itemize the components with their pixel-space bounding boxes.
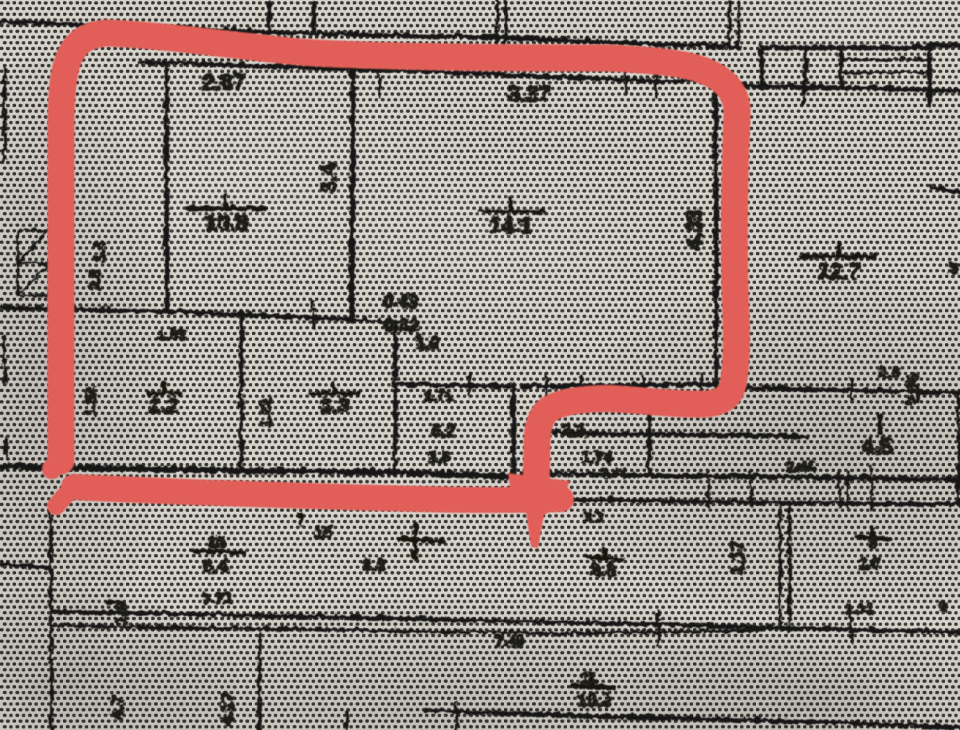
- svg-text:1.5: 1.5: [90, 240, 107, 261]
- svg-text:1.74: 1.74: [579, 448, 610, 465]
- svg-text:2.0: 2.0: [857, 554, 879, 571]
- svg-text:4.5: 4.5: [861, 432, 892, 457]
- svg-text:1.9: 1.9: [361, 554, 385, 573]
- svg-text:1.22: 1.22: [256, 396, 273, 425]
- svg-text:1.83: 1.83: [155, 325, 184, 342]
- svg-text:4.17: 4.17: [217, 691, 236, 724]
- svg-text:1.52: 1.52: [81, 385, 98, 414]
- svg-text:1.71: 1.71: [422, 386, 451, 403]
- svg-text:0.82: 0.82: [382, 314, 417, 334]
- svg-text:2.85: 2.85: [904, 372, 921, 403]
- svg-text:1.9: 1.9: [112, 601, 129, 623]
- svg-text:7.49: 7.49: [493, 632, 522, 649]
- svg-text:14.1: 14.1: [488, 211, 531, 236]
- svg-text:12.7: 12.7: [817, 257, 860, 282]
- svg-text:4.33: 4.33: [682, 208, 705, 249]
- svg-text:1.17: 1.17: [726, 538, 746, 573]
- svg-text:2.87: 2.87: [201, 68, 244, 93]
- svg-text:2.1: 2.1: [559, 419, 584, 439]
- svg-text:1.12: 1.12: [843, 599, 872, 616]
- svg-text:0.43: 0.43: [381, 290, 416, 310]
- svg-text:3.3: 3.3: [318, 393, 347, 416]
- svg-text:2.5: 2.5: [85, 268, 102, 289]
- svg-text:8.6: 8.6: [589, 559, 614, 579]
- svg-text:6.4: 6.4: [201, 555, 226, 575]
- svg-text:3.4: 3.4: [316, 162, 339, 192]
- svg-text:2.44: 2.44: [599, 464, 625, 479]
- svg-text:3.37: 3.37: [507, 80, 550, 105]
- svg-text:2: 2: [938, 597, 946, 613]
- svg-text:8: 8: [867, 533, 875, 550]
- svg-text:5.2: 5.2: [430, 420, 454, 439]
- svg-text:15: 15: [206, 533, 224, 550]
- svg-text:2.2: 2.2: [147, 393, 176, 416]
- svg-text:2.44: 2.44: [784, 457, 814, 474]
- svg-text:10.2: 10.2: [575, 689, 610, 709]
- svg-text:1.9: 1.9: [413, 332, 438, 352]
- svg-text:1.5: 1.5: [427, 448, 449, 465]
- svg-text:15: 15: [313, 521, 332, 540]
- svg-text:4.7: 4.7: [107, 694, 126, 718]
- svg-text:11: 11: [580, 669, 597, 686]
- svg-text:10.8: 10.8: [204, 209, 247, 234]
- svg-text:3.7: 3.7: [582, 508, 603, 525]
- svg-text:3: 3: [948, 259, 956, 276]
- svg-text:3.71: 3.71: [201, 589, 230, 606]
- svg-text:2.5: 2.5: [878, 363, 898, 379]
